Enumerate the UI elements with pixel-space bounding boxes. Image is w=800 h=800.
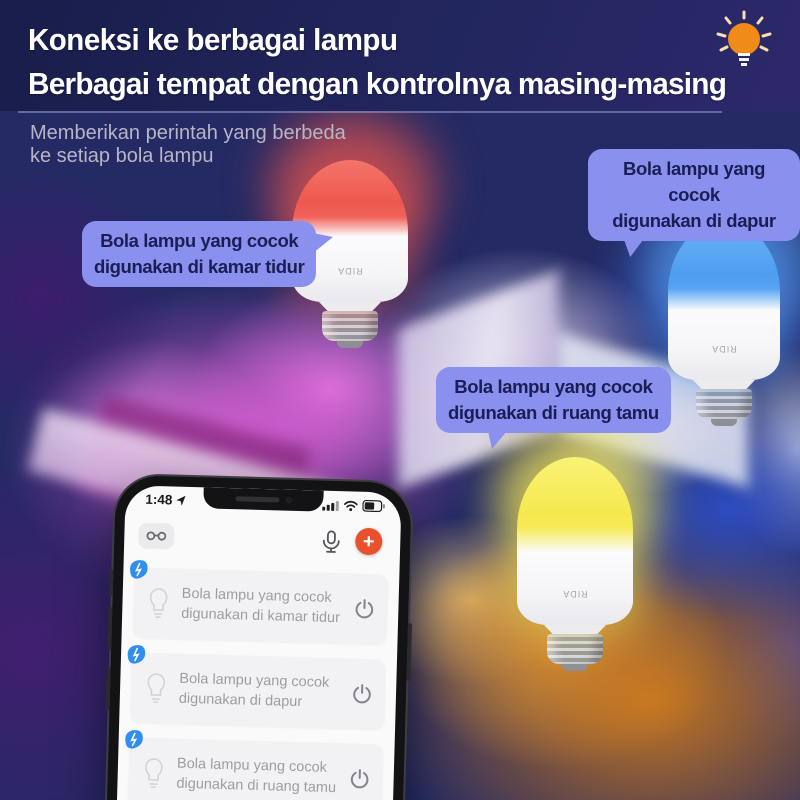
callout-bedroom: Bola lampu yang cocok digunakan di kamar… xyxy=(82,221,316,287)
signal-icon xyxy=(322,499,339,510)
volume-up-button xyxy=(107,607,112,651)
bulb-screw-base xyxy=(696,389,752,419)
app-top-bar: + xyxy=(136,519,389,560)
page-title-line2: Berbagai tempat dengan kontrolnya masing… xyxy=(28,66,726,102)
bulb-neck xyxy=(544,625,606,634)
callout-kitchen: Bola lampu yang cocok digunakan di dapur xyxy=(588,149,800,241)
device-name-line2: digunakan di kamar tidur xyxy=(181,604,345,629)
yellow-bulb-glass: RIDA xyxy=(517,457,633,625)
bulb-outline-icon xyxy=(142,757,165,790)
header-divider xyxy=(18,111,722,113)
scene-glasses-button[interactable] xyxy=(138,523,175,550)
subtitle-line1: Memberikan perintah yang berbeda xyxy=(30,122,346,145)
bulb-screw-base xyxy=(547,634,603,664)
bulb-neck xyxy=(319,302,381,311)
yellow-smart-bulb: RIDA xyxy=(517,457,633,671)
smart-badge-icon xyxy=(125,643,148,666)
device-list: Bola lampu yang cocok digunakan di kamar… xyxy=(128,567,389,800)
callout-bedroom-line1: Bola lampu yang cocok xyxy=(94,228,304,254)
subtitle-line2: ke setiap bola lampu xyxy=(30,145,346,168)
location-arrow-icon xyxy=(175,495,186,506)
phone-screen: 1:48 xyxy=(115,485,401,800)
microphone-button[interactable] xyxy=(320,530,343,555)
callout-kitchen-line2: digunakan di dapur xyxy=(600,208,788,234)
header-subtitle: Memberikan perintah yang berbeda ke seti… xyxy=(30,122,346,168)
status-time: 1:48 xyxy=(145,492,172,508)
battery-icon xyxy=(362,500,385,513)
page-title-line1: Koneksi ke berbagai lampu xyxy=(28,22,397,58)
volume-down-button xyxy=(105,667,110,711)
smart-badge-icon xyxy=(127,558,150,581)
glasses-icon xyxy=(146,530,166,543)
bulb-screw-base xyxy=(322,311,378,341)
smart-badge-icon xyxy=(122,728,145,751)
bulb-contact-tip xyxy=(711,419,737,426)
bulb-neck xyxy=(693,380,755,389)
add-device-button[interactable]: + xyxy=(355,528,383,556)
bulb-contact-tip xyxy=(337,341,363,348)
device-card-kitchen[interactable]: Bola lampu yang cocok digunakan di dapur xyxy=(130,652,386,729)
smartphone-mockup: 1:48 xyxy=(105,475,411,800)
callout-living-room: Bola lampu yang cocok digunakan di ruang… xyxy=(436,367,671,433)
bulb-contact-tip xyxy=(562,664,588,671)
bulb-brand-text: RIDA xyxy=(668,344,780,354)
callout-bedroom-line2: digunakan di kamar tidur xyxy=(94,254,304,280)
blue-smart-bulb: RIDA xyxy=(668,222,780,426)
bulb-outline-icon xyxy=(147,587,170,620)
wifi-icon xyxy=(343,500,358,511)
power-toggle-button[interactable] xyxy=(348,766,371,791)
callout-living-line2: digunakan di ruang tamu xyxy=(448,400,659,426)
mute-switch xyxy=(109,570,114,596)
bulb-outline-icon xyxy=(145,672,168,705)
device-name-line2: digunakan di ruang tamu xyxy=(176,774,340,799)
power-toggle-button[interactable] xyxy=(351,682,374,707)
status-bar: 1:48 xyxy=(125,491,401,517)
promo-image: Koneksi ke berbagai lampu Berbagai tempa… xyxy=(0,0,800,800)
glowing-bulb-icon xyxy=(708,6,780,78)
blue-bulb-glass: RIDA xyxy=(668,222,780,380)
callout-living-line1: Bola lampu yang cocok xyxy=(448,374,659,400)
callout-kitchen-line1: Bola lampu yang cocok xyxy=(600,156,788,208)
device-card-living-room[interactable]: Bola lampu yang cocok digunakan di ruang… xyxy=(128,737,384,800)
plus-icon: + xyxy=(363,531,375,551)
power-toggle-button[interactable] xyxy=(353,597,376,622)
bulb-brand-text: RIDA xyxy=(517,589,633,599)
device-card-bedroom[interactable]: Bola lampu yang cocok digunakan di kamar… xyxy=(133,567,389,644)
